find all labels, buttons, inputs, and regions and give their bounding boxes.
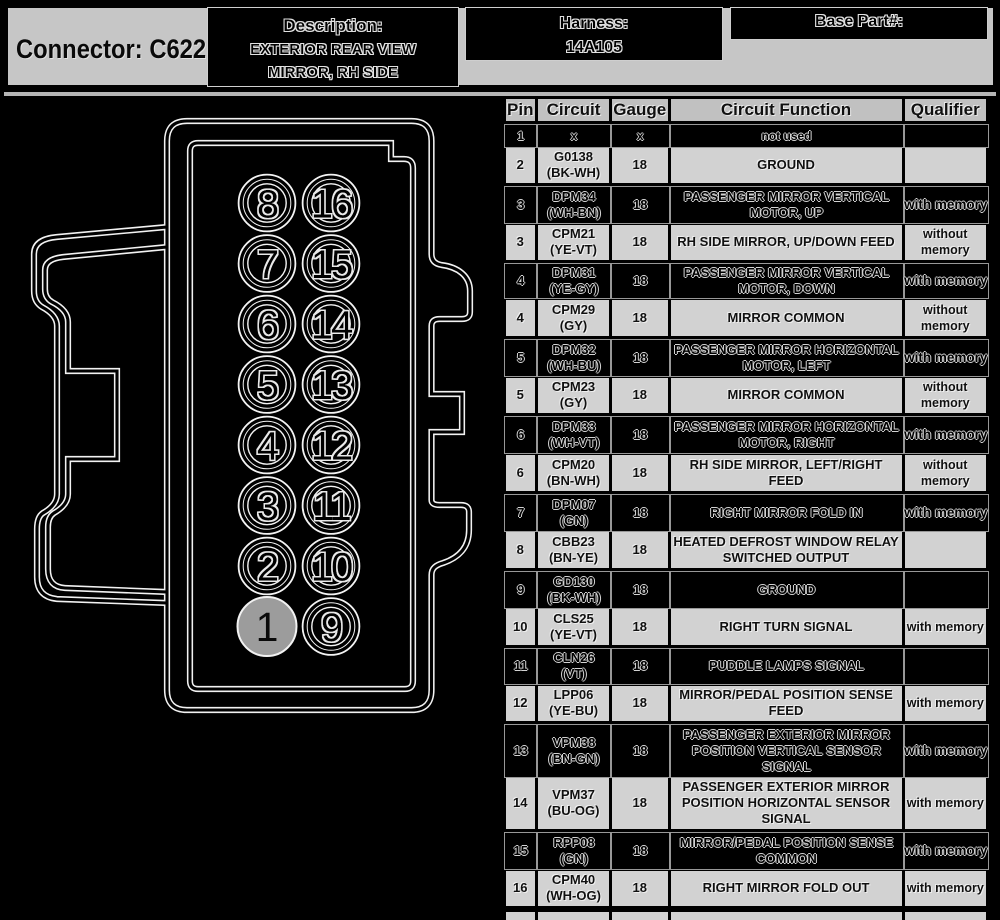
svg-text:2: 2 — [257, 546, 278, 590]
svg-text:3: 3 — [257, 485, 278, 529]
svg-text:Description:: Description: — [283, 16, 382, 35]
svg-text:14A105: 14A105 — [566, 39, 622, 56]
svg-text:4: 4 — [257, 425, 279, 469]
svg-text:16: 16 — [311, 183, 352, 227]
svg-text:EXTERIOR REAR VIEW: EXTERIOR REAR VIEW — [250, 41, 417, 58]
svg-text:11: 11 — [312, 485, 350, 529]
svg-text:12: 12 — [311, 425, 352, 469]
svg-text:MIRROR, RH SIDE: MIRROR, RH SIDE — [268, 64, 398, 81]
svg-text:15: 15 — [311, 243, 352, 287]
svg-text:Harness:: Harness: — [560, 15, 628, 32]
svg-text:9: 9 — [321, 606, 342, 650]
svg-text:14: 14 — [311, 304, 353, 348]
svg-text:5: 5 — [257, 364, 278, 408]
svg-text:Base Part#:: Base Part#: — [815, 13, 903, 30]
svg-text:6: 6 — [257, 304, 278, 348]
svg-text:8: 8 — [257, 183, 278, 227]
svg-text:10: 10 — [311, 546, 352, 590]
svg-text:7: 7 — [257, 243, 278, 287]
svg-text:1: 1 — [256, 604, 279, 650]
svg-text:13: 13 — [311, 364, 352, 408]
